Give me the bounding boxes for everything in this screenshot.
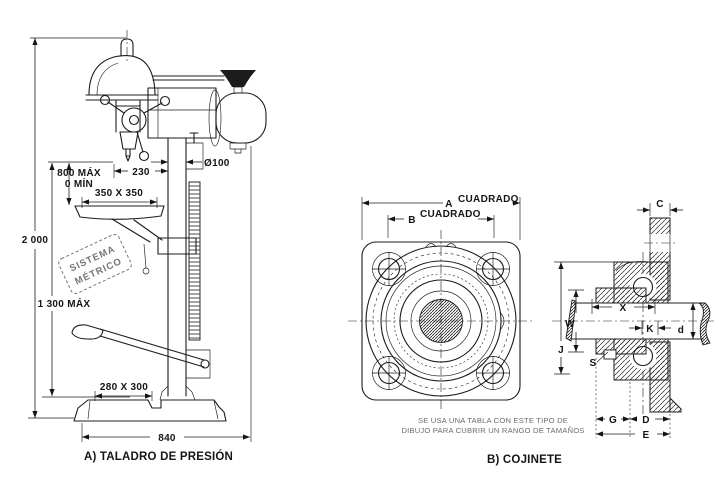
dim-k: K xyxy=(646,324,654,335)
bearing-front-view: A CUADRADO B CUADRADO xyxy=(348,194,534,412)
bearing-figure: A CUADRADO B CUADRADO xyxy=(348,194,717,466)
dim-base-width: 840 xyxy=(158,433,176,444)
dim-travel-max: 800 MÁX xyxy=(57,166,101,179)
dim-b-letter: B xyxy=(408,215,416,226)
dim-a-word: CUADRADO xyxy=(458,194,519,205)
column-clamp xyxy=(186,143,203,169)
dim-column-diameter: Ø100 xyxy=(204,158,230,169)
drill-press-dimensions: 2 000 800 MÁX 0 MÍN 1 300 MÁX 350 X 350 … xyxy=(22,38,251,444)
metric-system-stamp: SISTEMA MÉTRICO xyxy=(57,233,133,295)
dim-x: X xyxy=(620,303,627,314)
dim-base-plate: 280 X 300 xyxy=(100,382,148,393)
dim-spindle-to-column: 230 xyxy=(132,167,150,178)
dim-d-lower: d xyxy=(678,325,684,336)
dim-travel-min: 0 MÍN xyxy=(65,177,93,190)
chuck xyxy=(120,132,138,149)
base xyxy=(74,386,226,421)
shaft-bore xyxy=(420,300,463,343)
table-note-line1: SE USA UNA TABLA CON ESTE TIPO DE xyxy=(418,416,568,425)
belt xyxy=(153,76,224,80)
pulley-stack xyxy=(220,70,256,93)
belt-guard-dome xyxy=(89,56,155,95)
figure-a-caption: A) TALADRO DE PRESIÓN xyxy=(84,450,233,463)
figure-b-caption: B) COJINETE xyxy=(487,454,562,466)
motor xyxy=(216,93,266,143)
dim-table-size: 350 X 350 xyxy=(95,188,143,199)
dim-g: G xyxy=(609,415,617,426)
dim-c: C xyxy=(656,199,664,210)
dim-e: E xyxy=(643,430,650,441)
collar-bottom xyxy=(596,339,646,354)
dim-w: W xyxy=(565,319,575,330)
engineering-figure: 2 000 800 MÁX 0 MÍN 1 300 MÁX 350 X 350 … xyxy=(0,0,719,479)
dim-j: J xyxy=(558,345,564,356)
dim-overall-height: 2 000 xyxy=(22,235,49,246)
dome-base xyxy=(86,95,158,100)
table-note-line2: DIBUJO PARA CUBRIR UN RANGO DE TAMAÑOS xyxy=(401,426,584,435)
rack xyxy=(189,182,200,340)
dim-table-max-height: 1 300 MÁX xyxy=(38,297,91,310)
dim-d-upper: D xyxy=(642,415,650,426)
drill-press-machine xyxy=(72,30,266,421)
technical-drawing-page: 2 000 800 MÁX 0 MÍN 1 300 MÁX 350 X 350 … xyxy=(0,0,719,479)
flange-foot xyxy=(670,398,681,412)
drill-bit xyxy=(126,149,130,161)
dim-s: S xyxy=(590,358,597,369)
set-screw xyxy=(604,350,616,359)
drill-press-figure: 2 000 800 MÁX 0 MÍN 1 300 MÁX 350 X 350 … xyxy=(22,30,266,463)
feed-handle xyxy=(101,96,170,161)
dim-b-word: CUADRADO xyxy=(420,209,481,220)
side-view-dimensions: C W J X K xyxy=(554,199,701,441)
bearing-side-view: C W J X K xyxy=(552,199,717,441)
collar-top xyxy=(596,288,646,303)
